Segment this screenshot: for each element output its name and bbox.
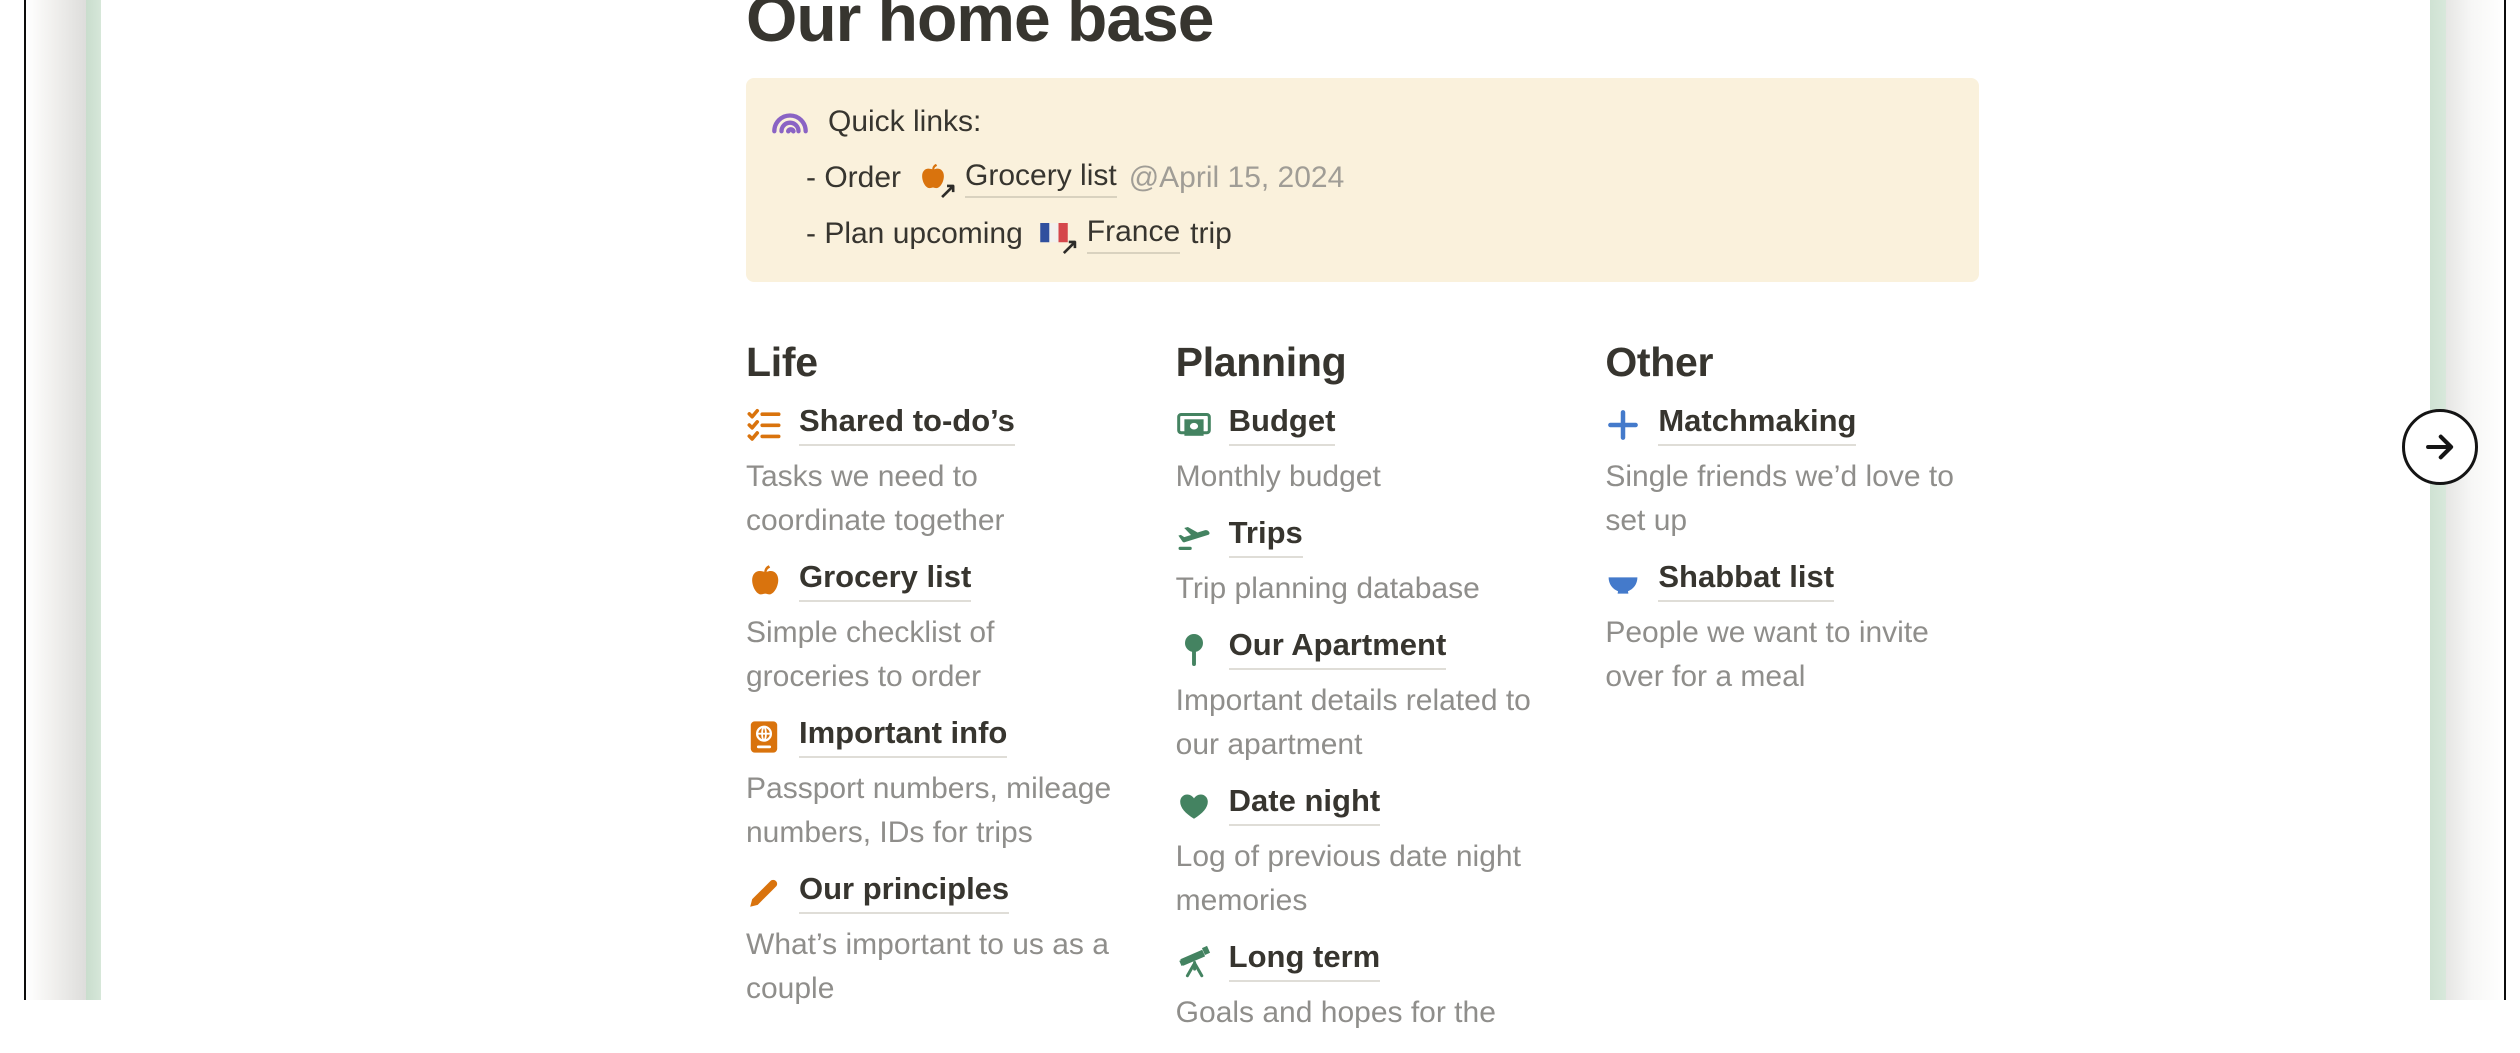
page-link-important-info[interactable]: Important info — [746, 717, 1120, 757]
page-link-title: Matchmaking — [1658, 403, 1856, 446]
sub-page-arrow-icon: ↗ — [939, 180, 957, 202]
date-mention: @April 15, 2024 — [1129, 161, 1345, 195]
left-cover-stripe — [86, 0, 101, 1000]
item-description: Trip planning database — [1176, 567, 1550, 611]
item-description: Goals and hopes for the — [1176, 991, 1550, 1035]
page-link-budget[interactable]: Budget — [1176, 405, 1550, 445]
quick-line-prefix: - Order — [806, 161, 901, 195]
pencil-icon — [746, 875, 782, 911]
quick-line-suffix: trip — [1190, 217, 1232, 251]
page-link-title: Important info — [799, 715, 1007, 758]
sections-row: Life Shared to-do’s Tasks we need to coo… — [746, 339, 1979, 1053]
page-link-shabbat-list[interactable]: Shabbat list — [1605, 561, 1979, 601]
page-left-shadow — [26, 0, 86, 1000]
page-link-title: Our Apartment — [1229, 627, 1447, 670]
telescope-icon — [1176, 943, 1212, 979]
page-content: Our home base Quick links: - Order — [746, 0, 1979, 1053]
callout-heading: Quick links: — [828, 102, 981, 142]
checklist-icon — [746, 407, 782, 443]
item-description: Single friends we’d love to set up — [1605, 455, 1979, 543]
item-description: Tasks we need to coordinate together — [746, 455, 1120, 543]
bowl-icon — [1605, 563, 1641, 599]
page-link-matchmaking[interactable]: Matchmaking — [1605, 405, 1979, 445]
passport-icon — [746, 719, 782, 755]
section-life: Life Shared to-do’s Tasks we need to coo… — [746, 339, 1120, 1053]
airplane-takeoff-icon — [1176, 519, 1212, 555]
france-flag-icon: ↗ — [1039, 218, 1071, 250]
page-link-title: Shabbat list — [1658, 559, 1834, 602]
item-description: People we want to invite over for a meal — [1605, 611, 1979, 699]
page-link-title: Trips — [1229, 515, 1303, 558]
page-link-title: Our principles — [799, 871, 1009, 914]
page-right-shadow — [2404, 0, 2430, 1000]
france-trip-inline-link[interactable]: France — [1087, 215, 1180, 254]
page-link-trips[interactable]: Trips — [1176, 517, 1550, 557]
item-description: Important details related to our apartme… — [1176, 679, 1550, 767]
page-link-long-term[interactable]: Long term — [1176, 941, 1550, 981]
grocery-list-inline-link[interactable]: Grocery list — [965, 159, 1117, 198]
quick-link-line: - Order ↗ Grocery list @April 15, 2024 — [806, 159, 1949, 198]
item-description: What’s important to us as a couple — [746, 923, 1120, 1011]
section-planning: Planning Budget Monthly budget — [1176, 339, 1550, 1053]
banknote-icon — [1176, 407, 1212, 443]
template-preview-page: Our home base Quick links: - Order — [101, 0, 2404, 1000]
section-heading: Other — [1605, 339, 1979, 385]
arrow-right-icon — [2421, 428, 2459, 466]
page-link-title: Long term — [1229, 939, 1381, 982]
page-link-title: Shared to-do’s — [799, 403, 1015, 446]
page-link-title: Date night — [1229, 783, 1381, 826]
page-link-grocery-list[interactable]: Grocery list — [746, 561, 1120, 601]
carousel-next-card-edge — [2504, 0, 2506, 1000]
plus-icon — [1605, 407, 1641, 443]
sub-page-arrow-icon: ↗ — [1060, 236, 1078, 258]
apple-icon: ↗ — [917, 162, 949, 194]
rainbow-icon — [770, 102, 810, 142]
next-card-gap — [2446, 0, 2504, 1000]
quick-line-prefix: - Plan upcoming — [806, 217, 1023, 251]
next-template-button[interactable] — [2402, 409, 2478, 485]
item-description: Log of previous date night memories — [1176, 835, 1550, 923]
page-title: Our home base — [746, 0, 1979, 53]
heart-icon — [1176, 787, 1212, 823]
round-pushpin-icon — [1176, 631, 1212, 667]
page-link-title: Grocery list — [799, 559, 971, 602]
section-heading: Life — [746, 339, 1120, 385]
section-heading: Planning — [1176, 339, 1550, 385]
apple-icon — [746, 563, 782, 599]
section-other: Other Matchmaking Single friends we’d lo… — [1605, 339, 1979, 1053]
item-description: Passport numbers, mileage numbers, IDs f… — [746, 767, 1120, 855]
page-link-date-night[interactable]: Date night — [1176, 785, 1550, 825]
page-link-shared-todos[interactable]: Shared to-do’s — [746, 405, 1120, 445]
item-description: Monthly budget — [1176, 455, 1550, 499]
item-description: Simple checklist of groceries to order — [746, 611, 1120, 699]
page-link-our-principles[interactable]: Our principles — [746, 873, 1120, 913]
page-link-our-apartment[interactable]: Our Apartment — [1176, 629, 1550, 669]
page-link-title: Budget — [1229, 403, 1336, 446]
quick-link-line: - Plan upcoming ↗ France trip — [806, 215, 1949, 254]
quick-links-callout: Quick links: - Order ↗ Grocery list @Apr… — [746, 78, 1979, 282]
right-cover-stripe — [2430, 0, 2446, 1000]
